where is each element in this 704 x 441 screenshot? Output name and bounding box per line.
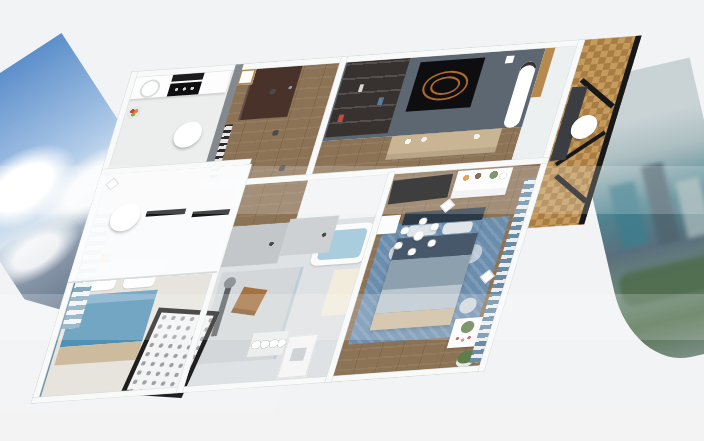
apartment-3d-view[interactable] bbox=[31, 36, 641, 404]
light-band bbox=[0, 166, 704, 214]
cooktop[interactable] bbox=[167, 81, 202, 96]
render-viewport bbox=[0, 0, 704, 441]
light-band bbox=[0, 294, 704, 340]
washer-door bbox=[289, 348, 307, 362]
bottom-fade bbox=[0, 412, 704, 441]
